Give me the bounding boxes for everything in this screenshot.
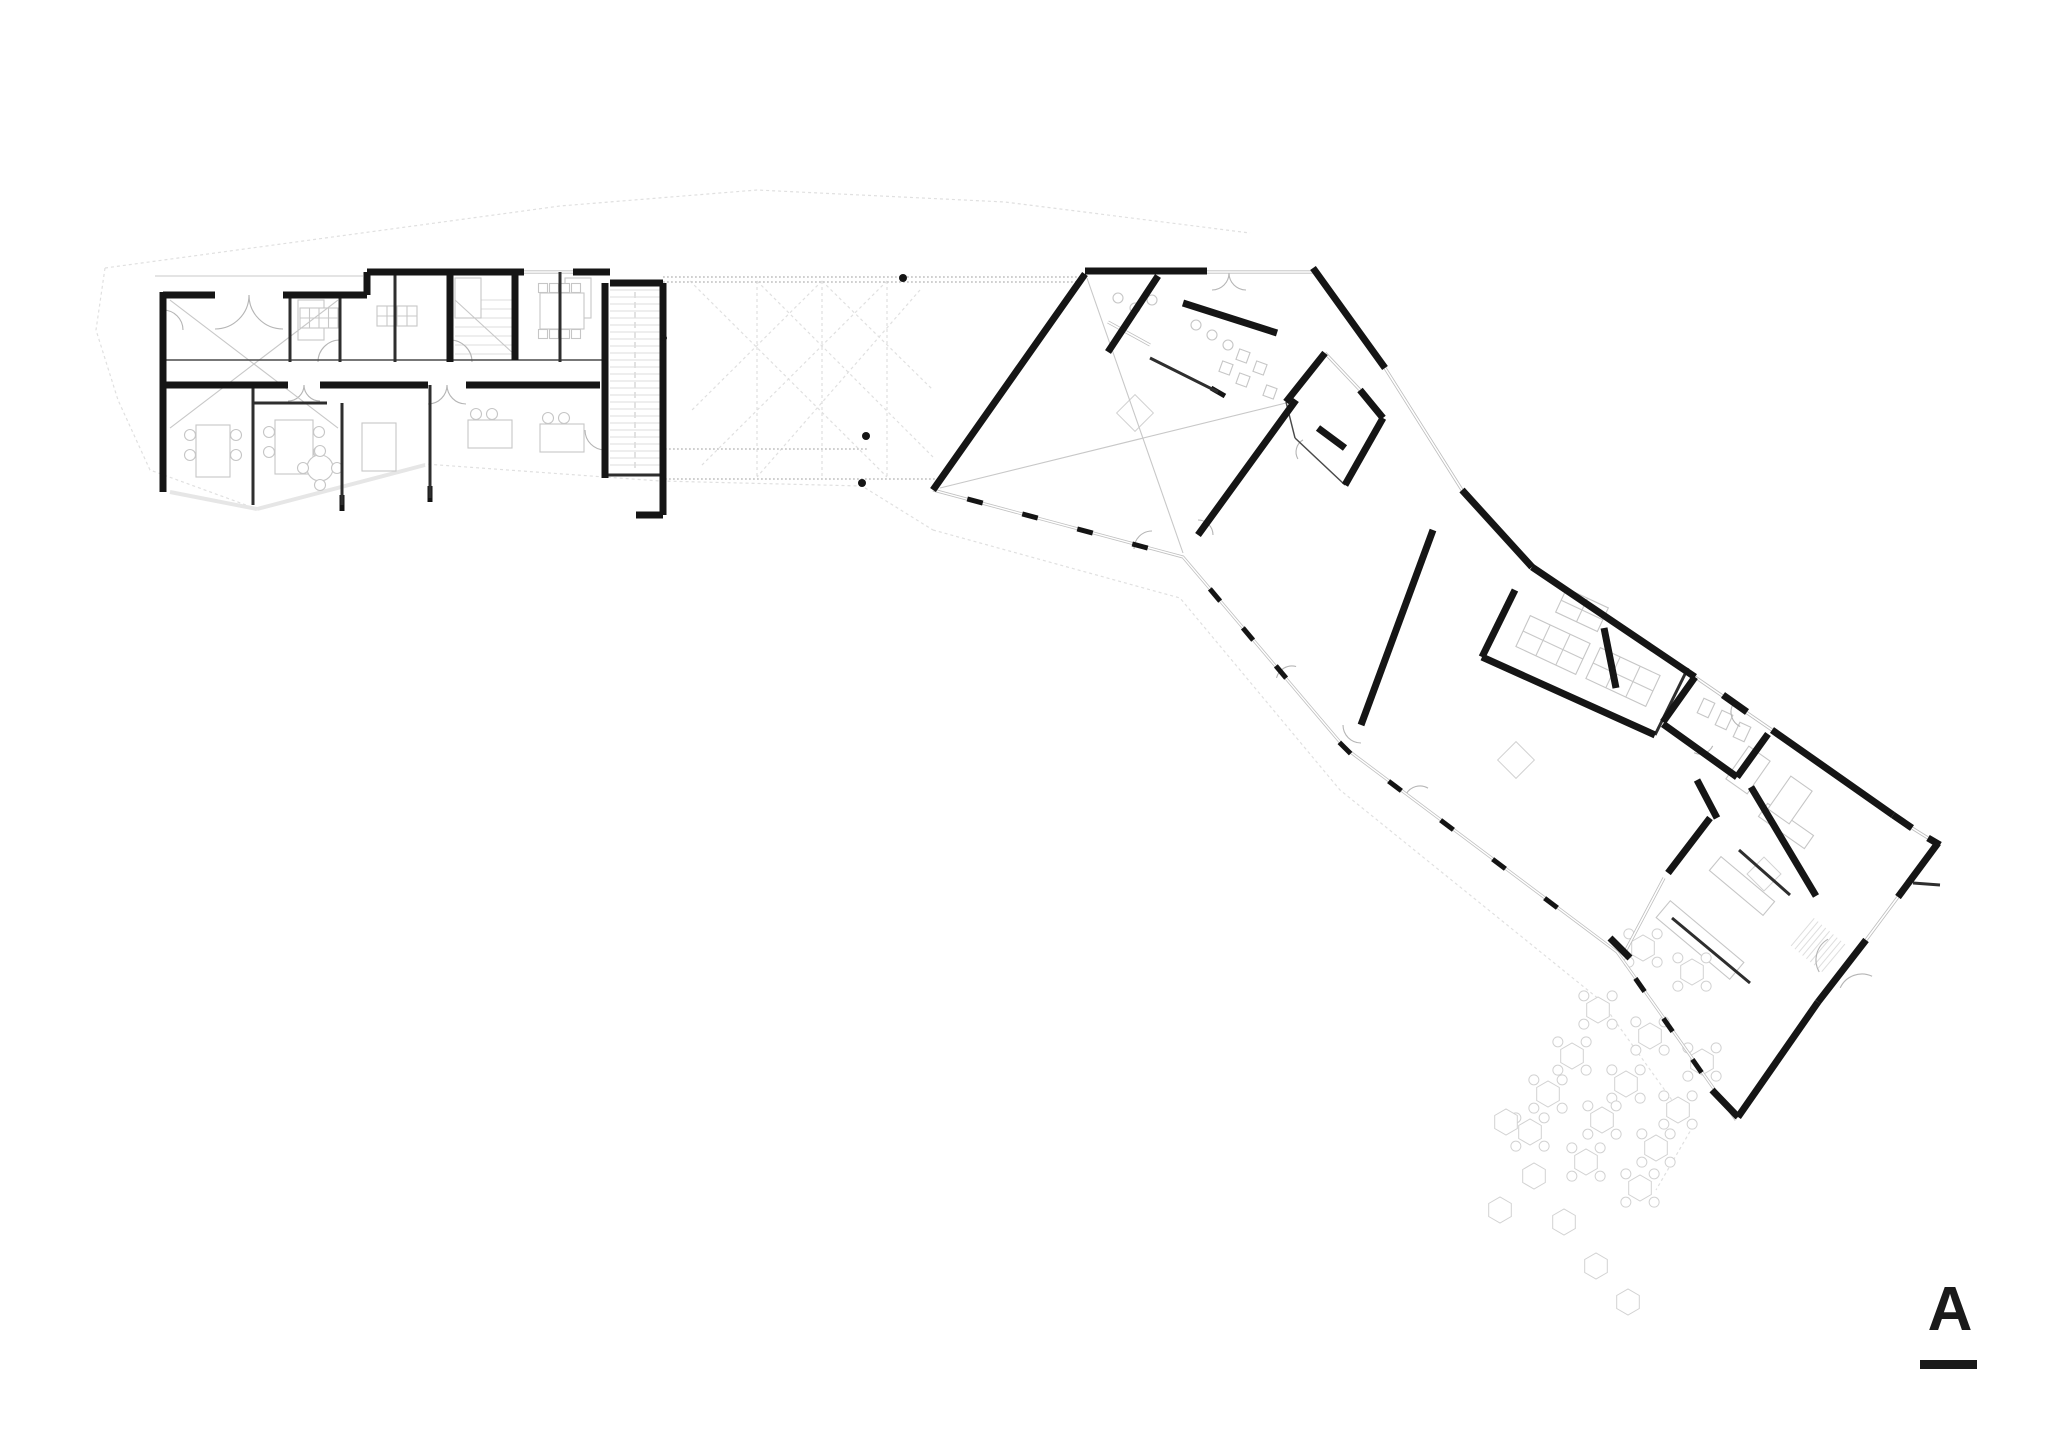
section-marker-underline <box>1920 1360 1977 1369</box>
terrace-tables-layer <box>1489 929 1721 1315</box>
section-marker-label: A <box>1928 1275 1973 1344</box>
door-swing-layer <box>163 273 1872 988</box>
column-dots-layer <box>661 274 907 487</box>
section-marker: A <box>1920 1275 1977 1369</box>
furniture-layer <box>185 278 1814 979</box>
floor-plan-canvas: A <box>0 0 2048 1447</box>
walls-layer <box>155 268 1940 1117</box>
plan-sheet: A <box>0 0 2048 1447</box>
